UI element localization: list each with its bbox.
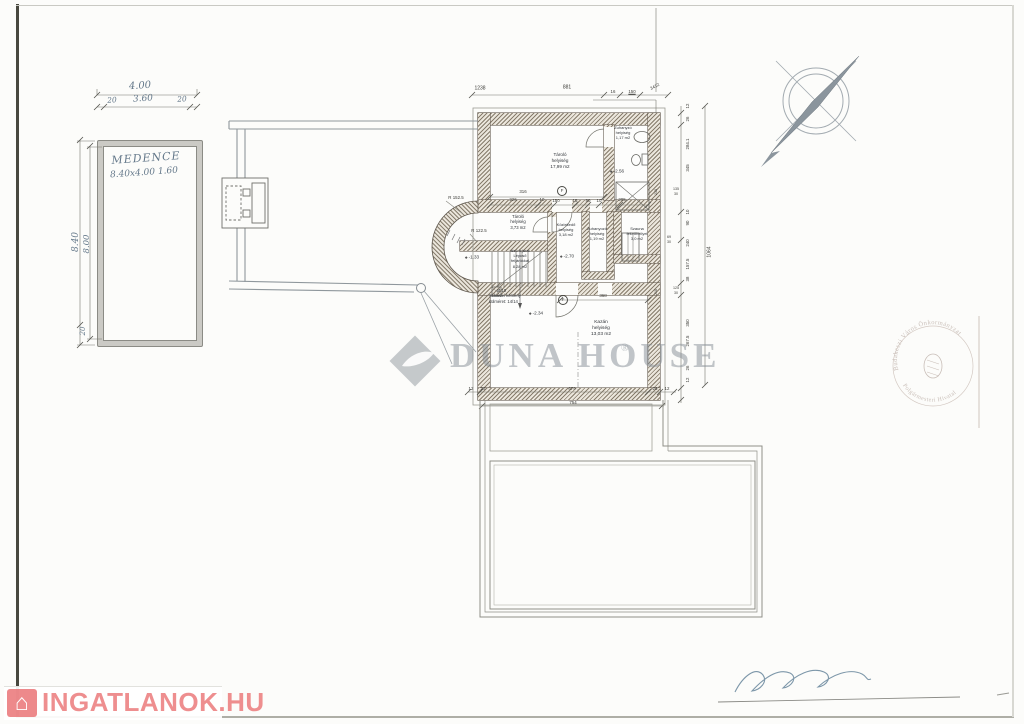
house-glyph: ⌂	[15, 689, 29, 715]
radius-outer: R 152.5	[448, 196, 463, 200]
room-storage-small: Tároló helyiség 3,73 m2	[510, 214, 525, 230]
pool-dim-right: 20	[177, 94, 187, 104]
dim-right-9: 350	[686, 319, 690, 326]
room-shower-top: Zuhanyzó helyiség 1,17 m2	[614, 125, 632, 141]
compass-rose	[761, 56, 859, 167]
dunahouse-registered-mark: ®	[621, 343, 629, 354]
dim-row-2: 150	[552, 199, 559, 203]
dim-bottom-4: 12	[665, 387, 670, 391]
dim-right-4: 10	[686, 210, 690, 215]
dim-bottom-1: 26	[481, 387, 486, 391]
room-sauna: Szauna fekvőhellyel 3,0 m2	[627, 226, 648, 242]
dim-stack1b: 30	[674, 193, 678, 197]
dim-row-1: 10	[540, 198, 545, 202]
pool-dim-left: 20	[107, 95, 117, 105]
dim-316: 316	[519, 190, 526, 194]
curved-bay-wall	[432, 201, 478, 293]
scanned-floor-plan-page: Budakeszi Város Önkormányzat Polgármeste…	[0, 0, 1024, 724]
dim-row-6: 205	[618, 198, 625, 202]
level-shower: -2.56	[610, 170, 624, 175]
stamp-arc-bottom-text: Polgármesteri Hivatal	[901, 383, 958, 404]
dim-boiler-368: 368	[599, 294, 606, 298]
level-mid: -2.70	[560, 255, 574, 260]
pool-dim-height-outer: 8.40	[71, 232, 81, 252]
dim-right-7: 157.5	[686, 259, 690, 270]
dim-right-2: 284.1	[686, 139, 690, 150]
level-bay: -1.33	[465, 256, 479, 261]
dim-top-2: 16	[611, 90, 616, 94]
pool-dim-total: 4.00	[129, 80, 152, 93]
signature	[718, 670, 1009, 702]
dim-stack3b: 30	[667, 241, 671, 245]
stamp-arc-top-text: Budakeszi Város Önkormányzat	[892, 319, 963, 371]
room-chimney-note: Ø 10 Schiedel kémény külméret: 14/14	[489, 288, 521, 304]
dim-top-3: 150	[628, 90, 635, 94]
dim-right-total: 1064	[708, 246, 713, 257]
level-boiler: -2.34	[529, 312, 543, 317]
dim-right-0: 12	[686, 104, 690, 109]
svg-text:Polgármesteri Hivatal: Polgármesteri Hivatal	[901, 383, 958, 404]
dim-bottom-3: 26	[653, 387, 658, 391]
room-corridor: Közlekedő helyiség 3,18 m2	[557, 222, 576, 238]
pool-dim-mid: 3.60	[133, 93, 154, 104]
terrace-outline	[480, 400, 762, 617]
radius-inner: R 122.5	[471, 229, 486, 233]
svg-text:Budakeszi Város Önkormányzat: Budakeszi Város Önkormányzat	[892, 319, 963, 371]
dim-right-8: 38	[686, 277, 690, 282]
grid-mark-f1: F	[557, 186, 567, 196]
dim-wallmark-2: 218	[655, 289, 659, 295]
dim-row-3: 15	[573, 199, 578, 203]
dunahouse-diamond-logo	[390, 336, 441, 387]
dim-right-1: 26	[686, 117, 690, 122]
room-shower-mid: Zuhanyozó helyiség 1,19 m2	[587, 226, 607, 242]
pool-equipment-box	[222, 178, 268, 228]
stamp-crest	[924, 354, 942, 378]
dim-top-0: 1238	[474, 87, 485, 92]
dim-right-5: 90	[686, 221, 690, 226]
grid-mark-f2: F	[558, 295, 568, 305]
dim-bottom-2: 679	[568, 387, 575, 391]
room-stairs: alsó lejárat Lépcső feljárókkal 8,28 m2	[510, 248, 529, 269]
dim-row-4: 90	[586, 199, 591, 203]
municipal-stamp: Budakeszi Város Önkormányzat Polgármeste…	[892, 319, 973, 406]
dunahouse-watermark-text: DUNA HOUSE	[450, 336, 720, 376]
dim-right-3: 345	[686, 164, 690, 171]
room-storage-big: Tároló helyiség 17,99 m2	[550, 152, 569, 170]
dim-row-5: 10	[597, 199, 602, 203]
dim-row-0: 226	[509, 198, 516, 202]
dim-bottom-0: 12	[469, 387, 474, 391]
dim-right-12: 12	[686, 378, 690, 383]
pool-dim-height-bottom: 20	[79, 327, 87, 336]
dim-right-6: 240	[686, 239, 690, 246]
dim-wallmark-1: 218	[655, 189, 659, 195]
dim-bottom-total: 754	[569, 401, 576, 405]
compass-needle	[771, 56, 859, 153]
dim-stack2b: 30	[674, 292, 678, 296]
pool-dim-height-inner: 8.00	[82, 235, 92, 254]
ingatlanok-house-icon: ⌂	[7, 689, 37, 717]
ingatlanok-logo-text: INGATLANOK.HU	[42, 687, 265, 718]
dim-top-1: 881	[563, 86, 571, 91]
